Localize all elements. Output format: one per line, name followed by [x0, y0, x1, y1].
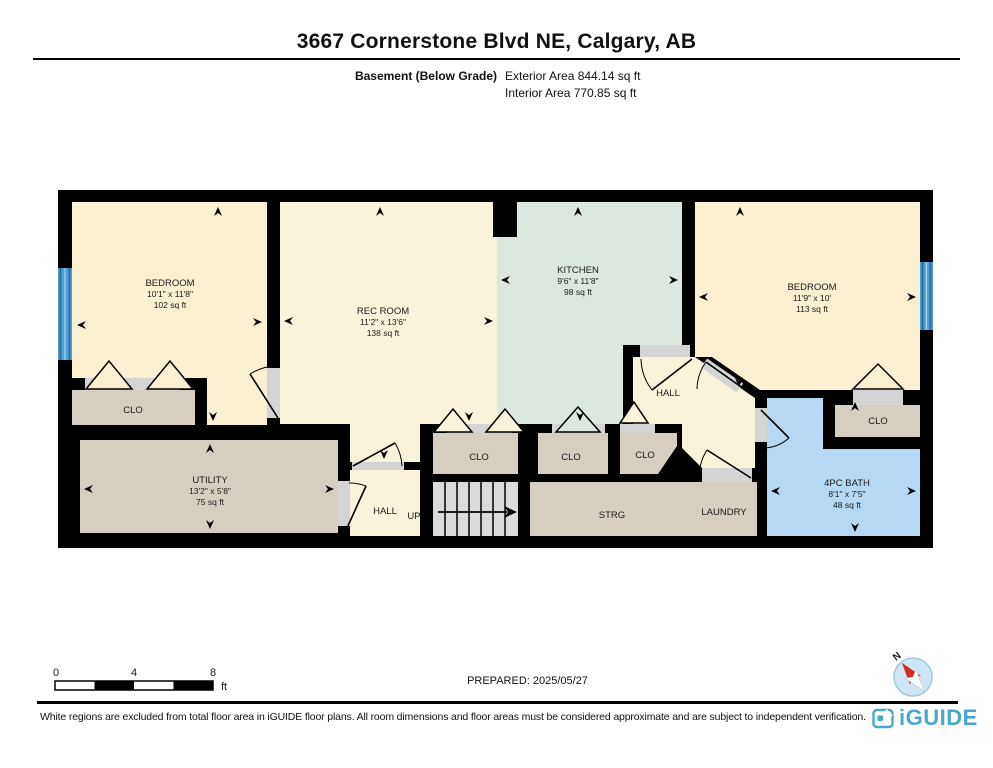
label-rec-room-area: 138 sq ft — [367, 328, 400, 338]
prepared-date: PREPARED: 2025/05/27 — [420, 675, 635, 687]
iguide-logo: iGUIDE — [871, 705, 978, 731]
compass-icon: N — [888, 648, 932, 696]
label-utility-area: 75 sq ft — [196, 497, 225, 507]
iguide-logo-icon — [871, 706, 895, 730]
label-closet-b: CLO — [561, 452, 581, 463]
scale-8: 8 — [210, 667, 216, 679]
label-strg: STRG — [599, 510, 625, 521]
floorplan-svg: BEDROOM 10'1" x 11'8" 102 sq ft REC ROOM… — [0, 0, 993, 768]
footer-divider — [37, 701, 958, 704]
label-closet-left: CLO — [123, 405, 143, 416]
floorplan-page: 3667 Cornerstone Blvd NE, Calgary, AB Ba… — [0, 0, 993, 768]
stairs — [433, 482, 518, 536]
label-kitchen-area: 98 sq ft — [564, 287, 593, 297]
label-utility: UTILITY — [192, 475, 228, 486]
scale-bar: 0 4 8 ft — [53, 667, 227, 693]
label-bedroom-left-dims: 10'1" x 11'8" — [147, 289, 193, 299]
window-icon — [920, 262, 933, 330]
label-bedroom-right-dims: 11'9" x 10' — [793, 293, 832, 303]
label-closet-right: CLO — [868, 416, 888, 427]
label-kitchen: KITCHEN — [557, 265, 599, 276]
label-bedroom-left: BEDROOM — [145, 278, 194, 289]
label-rec-room: REC ROOM — [357, 306, 409, 317]
label-bath-area: 48 sq ft — [833, 500, 862, 510]
label-utility-dims: 13'2" x 5'8" — [189, 486, 231, 496]
label-bedroom-left-area: 102 sq ft — [154, 300, 187, 310]
label-rec-room-dims: 11'2" x 13'6" — [360, 317, 406, 327]
label-bath-dims: 8'1" x 7'5" — [828, 489, 865, 499]
label-bedroom-right-area: 113 sq ft — [796, 304, 829, 314]
scale-unit: ft — [221, 681, 227, 693]
label-bath: 4PC BATH — [824, 478, 870, 489]
label-closet-c: CLO — [635, 450, 655, 461]
label-hall-upper: HALL — [656, 388, 680, 399]
scale-0: 0 — [53, 667, 59, 679]
wall-stub — [493, 202, 517, 237]
label-up: UP — [407, 511, 420, 522]
label-bedroom-right: BEDROOM — [787, 282, 836, 293]
footer-disclaimer: White regions are excluded from total fl… — [40, 711, 866, 723]
iguide-logo-text: iGUIDE — [899, 705, 978, 731]
label-closet-a: CLO — [469, 452, 489, 463]
label-hall-lower: HALL — [373, 506, 397, 517]
scale-4: 4 — [131, 667, 137, 679]
label-kitchen-dims: 9'6" x 11'8" — [557, 276, 598, 286]
window-icon — [58, 268, 72, 360]
label-laundry: LAUNDRY — [701, 507, 747, 518]
